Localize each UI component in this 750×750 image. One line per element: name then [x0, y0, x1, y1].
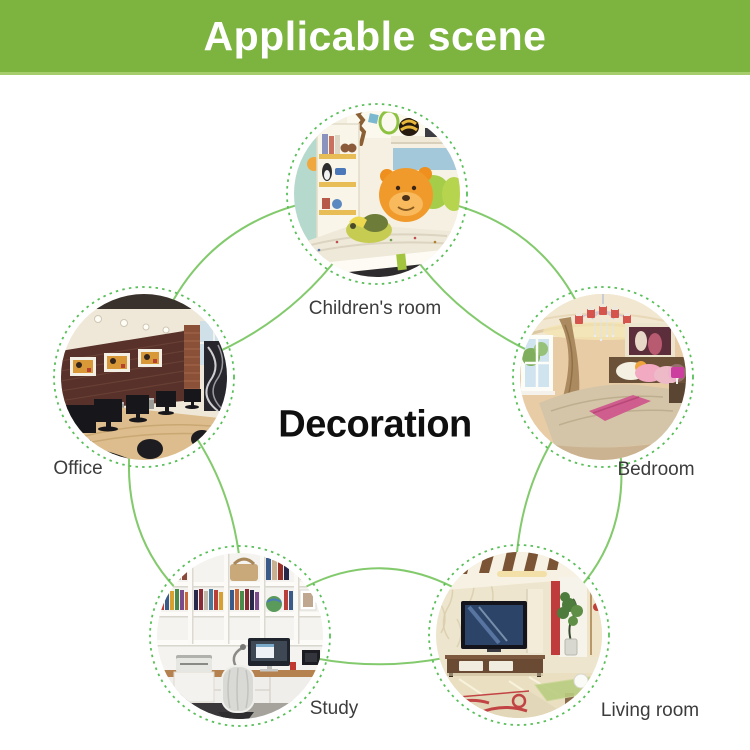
- childrens-room-photo: [287, 104, 467, 284]
- study-photo: [150, 546, 330, 726]
- label-childrens-room: Children's room: [309, 298, 441, 320]
- label-bedroom: Bedroom: [617, 459, 694, 481]
- bedroom-photo: [513, 287, 693, 467]
- label-living-room: Living room: [601, 700, 699, 722]
- center-title: Decoration: [278, 404, 471, 447]
- living-room-photo: [429, 545, 609, 725]
- label-study: Study: [310, 698, 359, 720]
- scene-diagram: [0, 0, 750, 750]
- label-office: Office: [53, 458, 102, 480]
- office-photo: [54, 287, 234, 467]
